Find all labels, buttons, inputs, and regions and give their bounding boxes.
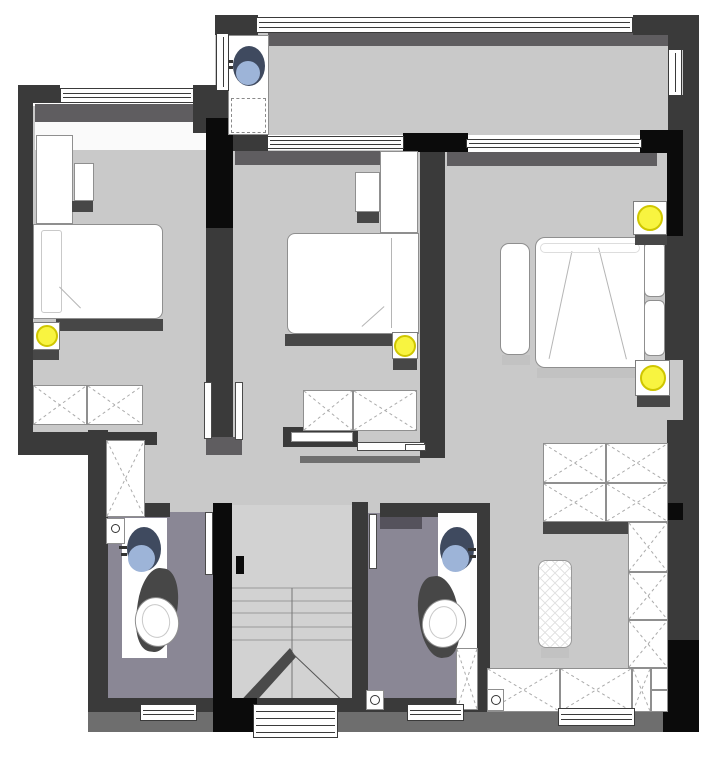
window-symbol: [140, 704, 197, 721]
window-symbol: [60, 88, 194, 103]
sliding-door-symbol: [405, 444, 426, 451]
shelf-symbol: [291, 432, 353, 442]
wall: [213, 503, 232, 715]
faucet-icon: [121, 553, 127, 556]
wall: [633, 15, 683, 35]
wall: [403, 133, 468, 152]
sink-basin: [442, 545, 469, 572]
nightstand-symbol: [355, 172, 380, 212]
faucet-icon: [470, 555, 476, 558]
wall-outer-right: [683, 15, 699, 732]
furniture-shadow: [635, 235, 667, 245]
window-symbol: [256, 17, 633, 33]
wall: [18, 85, 33, 455]
appliance-symbol: [231, 98, 266, 133]
window-symbol: [407, 704, 464, 721]
furniture-shadow: [537, 368, 645, 378]
cabinet-symbol: [651, 690, 668, 712]
wall: [668, 35, 683, 50]
wardrobe-symbol: [628, 522, 668, 572]
wardrobe-symbol: [353, 390, 417, 431]
desk-symbol: [36, 135, 73, 224]
sink-basin: [128, 545, 155, 572]
wall: [667, 152, 683, 236]
door-leaf-symbol: [369, 514, 377, 569]
window-symbol: [668, 49, 682, 96]
window-symbol: [216, 33, 229, 91]
window-symbol: [558, 708, 635, 726]
floor-drain-icon: [491, 695, 501, 705]
wall: [236, 556, 244, 574]
ottoman-symbol: [538, 560, 572, 648]
wardrobe-symbol: [606, 483, 668, 522]
headboard-cushion: [644, 241, 665, 297]
floor-balcony: [215, 32, 683, 135]
furniture-shadow: [637, 396, 670, 407]
sink-basin: [236, 61, 260, 85]
wall-shadow-bathroom-2: [380, 517, 422, 529]
furniture-shadow: [56, 319, 163, 331]
furniture-shadow: [393, 359, 417, 370]
wall: [420, 152, 445, 458]
wardrobe-symbol: [33, 385, 87, 425]
wall-shadow-master: [447, 152, 657, 166]
headboard-line: [391, 238, 392, 328]
wardrobe-symbol: [87, 385, 143, 425]
wall: [640, 130, 683, 153]
wall: [18, 85, 60, 103]
cabinet-symbol: [651, 668, 668, 690]
wardrobe-symbol: [380, 151, 418, 233]
sliding-door-track: [300, 456, 420, 463]
wall: [668, 95, 683, 133]
wall: [665, 236, 683, 360]
wall-shadow-bedroom-1: [35, 104, 206, 122]
wardrobe-symbol: [628, 620, 668, 668]
cabinet-symbol: [632, 668, 651, 712]
ceiling-lamp-symbol: [633, 201, 667, 235]
window-symbol: [267, 136, 404, 149]
floor-drain-icon: [370, 695, 380, 705]
furniture-shadow: [285, 334, 393, 346]
wall: [215, 15, 258, 35]
wall: [213, 698, 257, 732]
bay-window-symbol: [253, 704, 338, 738]
door-leaf-symbol: [235, 382, 243, 440]
ceiling-lamp-symbol: [635, 360, 670, 396]
furniture-shadow: [541, 648, 569, 658]
pillow-symbol: [540, 243, 640, 253]
bed-symbol: [287, 233, 419, 334]
wardrobe-symbol: [606, 443, 668, 483]
furniture-shadow: [33, 350, 59, 360]
wall: [18, 432, 92, 455]
faucet-icon: [468, 548, 476, 551]
window-symbol: [466, 139, 642, 148]
pillow-symbol: [41, 230, 62, 313]
furniture-shadow: [72, 201, 93, 212]
bench-symbol: [500, 243, 530, 355]
cabinet-symbol: [456, 648, 478, 710]
ceiling-lamp-symbol: [392, 332, 418, 359]
wall-outer-left-lower: [88, 430, 108, 712]
floor-drain-icon: [111, 524, 120, 533]
wardrobe-symbol: [543, 443, 606, 483]
nightstand-symbol: [74, 163, 94, 201]
wall: [663, 640, 699, 732]
cabinet-symbol: [106, 440, 145, 517]
door-leaf-symbol: [205, 512, 213, 575]
faucet-icon: [119, 546, 127, 549]
furniture-shadow: [543, 522, 628, 534]
ceiling-lamp-symbol: [33, 322, 60, 350]
wall: [352, 502, 368, 712]
furniture-shadow: [357, 212, 379, 223]
door-leaf-symbol: [204, 382, 212, 439]
furniture-shadow: [502, 355, 530, 365]
wardrobe-symbol: [303, 390, 353, 431]
wardrobe-symbol: [628, 572, 668, 620]
floor-plan-canvas: [0, 0, 703, 757]
cabinet-symbol: [560, 668, 632, 712]
wall-shadow-balcony: [268, 33, 672, 46]
headboard-cushion: [644, 300, 665, 356]
stairs-symbol: [232, 505, 353, 710]
wardrobe-symbol: [543, 483, 606, 522]
